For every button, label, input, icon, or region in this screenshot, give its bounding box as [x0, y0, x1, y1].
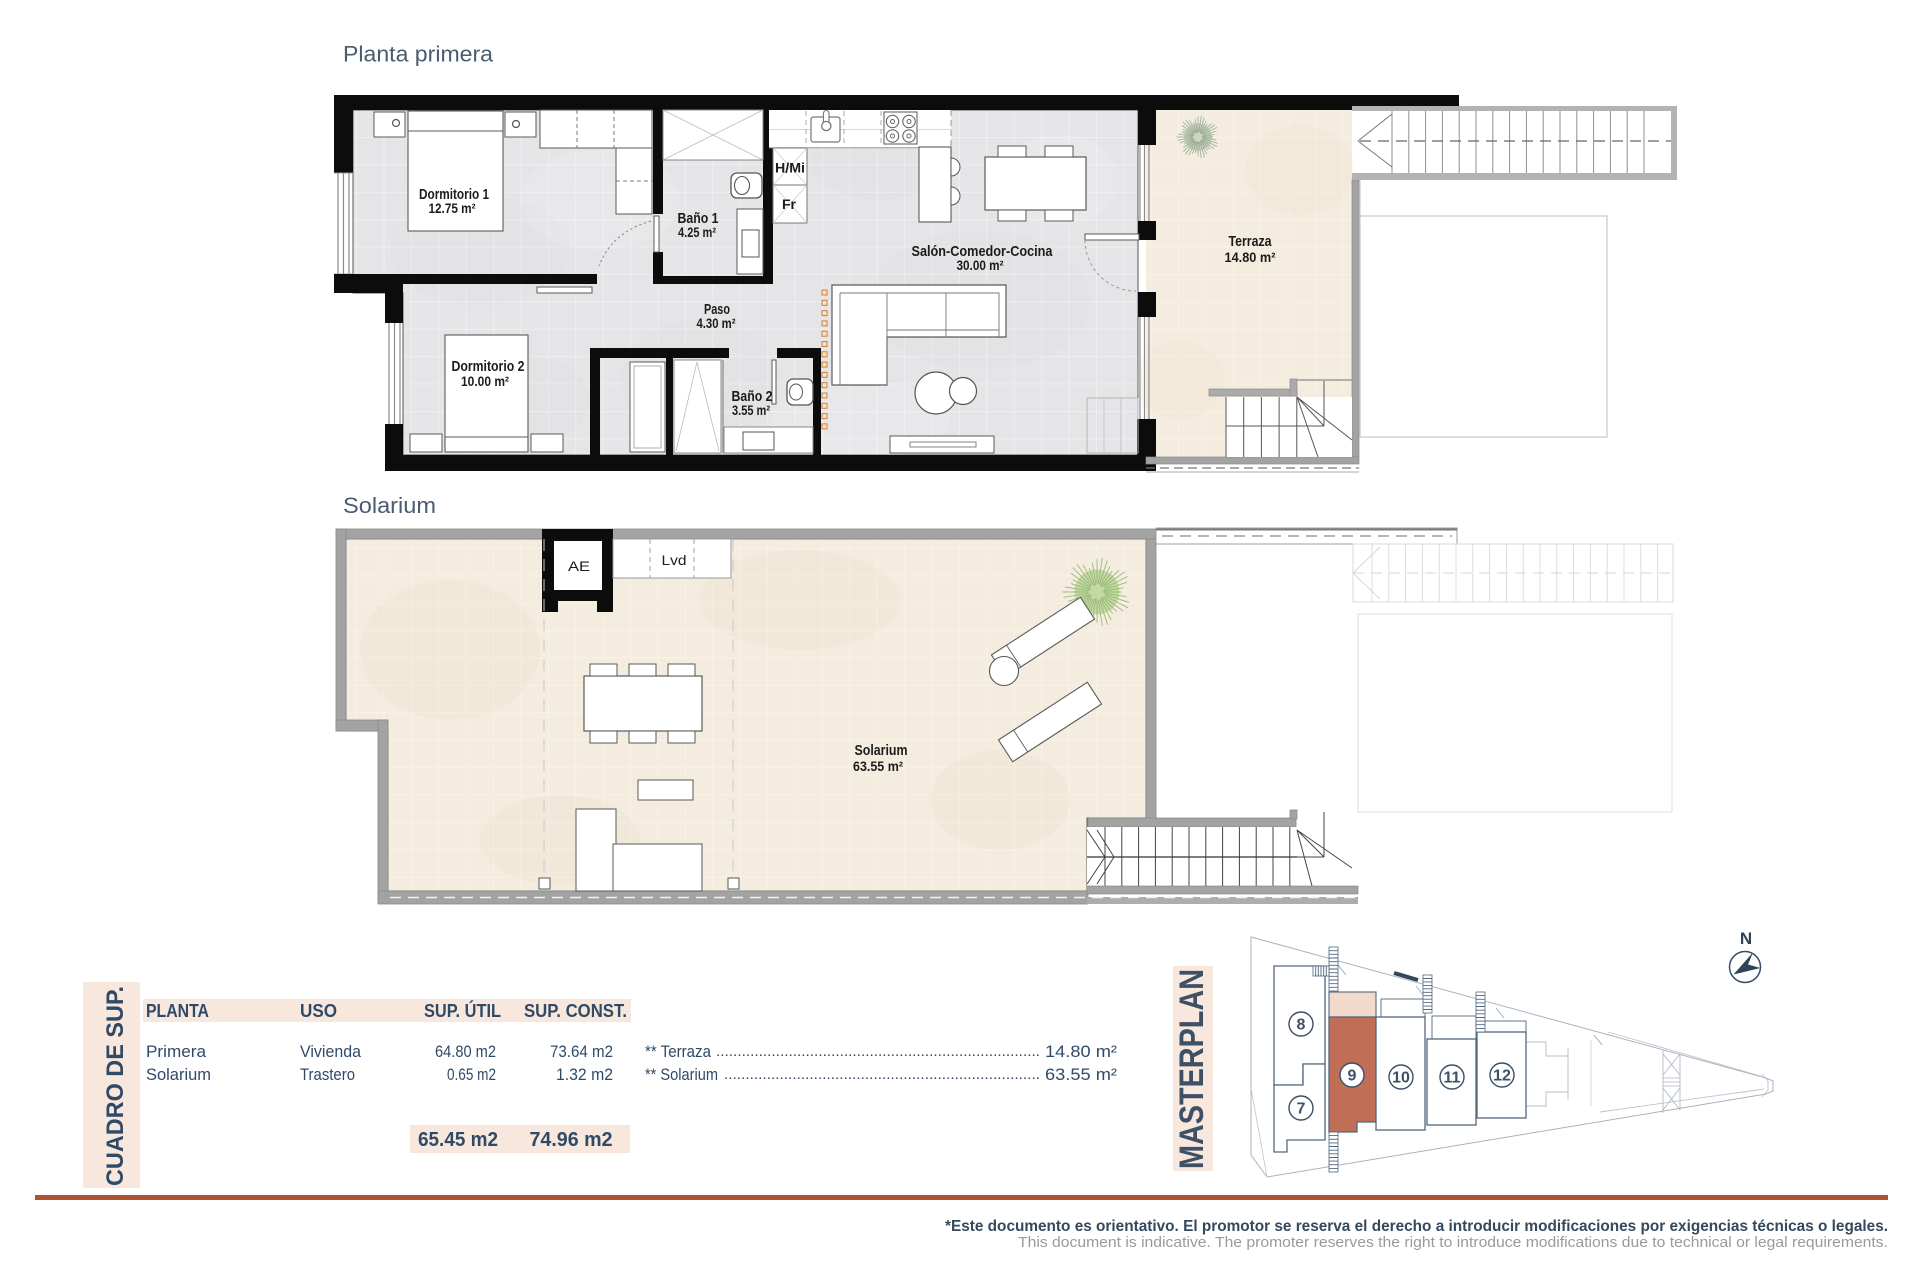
svg-text:** Terraza: ** Terraza: [645, 1042, 711, 1061]
svg-text:Solarium: Solarium: [146, 1065, 211, 1084]
svg-text:10: 10: [1392, 1070, 1410, 1087]
svg-text:AE: AE: [568, 558, 590, 574]
svg-text:12: 12: [1493, 1068, 1511, 1085]
svg-text:14.80 m²: 14.80 m²: [1225, 250, 1276, 265]
svg-text:8: 8: [1297, 1017, 1306, 1034]
svg-text:Vivienda: Vivienda: [300, 1042, 362, 1061]
svg-text:7: 7: [1297, 1101, 1306, 1118]
svg-text:65.45 m2: 65.45 m2: [418, 1129, 498, 1151]
svg-text:63.55 m²: 63.55 m²: [1045, 1065, 1117, 1084]
svg-text:Primera: Primera: [146, 1042, 207, 1061]
svg-text:USO: USO: [300, 1001, 337, 1021]
svg-text:H/Mi: H/Mi: [775, 161, 805, 176]
svg-text:Lvd: Lvd: [662, 552, 687, 568]
svg-text:** Solarium: ** Solarium: [645, 1065, 718, 1084]
svg-text:73.64 m2: 73.64 m2: [550, 1042, 613, 1061]
svg-text:1.32 m2: 1.32 m2: [556, 1065, 613, 1084]
svg-text:4.25 m²: 4.25 m²: [678, 225, 716, 240]
svg-text:63.55 m²: 63.55 m²: [853, 759, 903, 774]
svg-text:Trastero: Trastero: [300, 1065, 355, 1084]
svg-text:14.80 m²: 14.80 m²: [1045, 1042, 1117, 1061]
svg-text:PLANTA: PLANTA: [146, 1001, 209, 1021]
svg-text:Fr: Fr: [782, 197, 797, 212]
svg-text:Solarium: Solarium: [855, 742, 908, 759]
svg-text:..............................: ........................................…: [724, 1066, 1040, 1083]
svg-text:N: N: [1740, 929, 1752, 948]
svg-text:30.00 m²: 30.00 m²: [957, 258, 1004, 273]
svg-text:Dormitorio 2: Dormitorio 2: [452, 358, 525, 375]
svg-text:MASTERPLAN: MASTERPLAN: [1173, 969, 1211, 1169]
svg-text:3.55 m²: 3.55 m²: [732, 403, 770, 418]
svg-text:64.80 m2: 64.80 m2: [435, 1042, 496, 1061]
svg-text:10.00 m²: 10.00 m²: [461, 374, 509, 389]
svg-text:CUADRO DE SUP.: CUADRO DE SUP.: [102, 986, 129, 1186]
svg-text:This document is indicative. T: This document is indicative. The promote…: [1018, 1234, 1888, 1251]
svg-text:0.65 m2: 0.65 m2: [447, 1065, 496, 1084]
svg-text:12.75 m²: 12.75 m²: [429, 201, 476, 216]
svg-text:SUP. ÚTIL: SUP. ÚTIL: [424, 1000, 501, 1021]
svg-text:Planta primera: Planta primera: [343, 42, 494, 67]
svg-text:Terraza: Terraza: [1229, 233, 1273, 250]
svg-text:4.30 m²: 4.30 m²: [697, 316, 736, 331]
svg-text:11: 11: [1444, 1070, 1461, 1087]
svg-text:9: 9: [1348, 1068, 1357, 1085]
svg-text:Solarium: Solarium: [343, 493, 436, 518]
svg-text:*Este documento es orientativo: *Este documento es orientativo. El promo…: [945, 1218, 1888, 1235]
svg-text:SUP. CONST.: SUP. CONST.: [524, 1001, 627, 1021]
svg-text:74.96 m2: 74.96 m2: [530, 1129, 613, 1151]
svg-text:..............................: ........................................…: [716, 1043, 1040, 1060]
